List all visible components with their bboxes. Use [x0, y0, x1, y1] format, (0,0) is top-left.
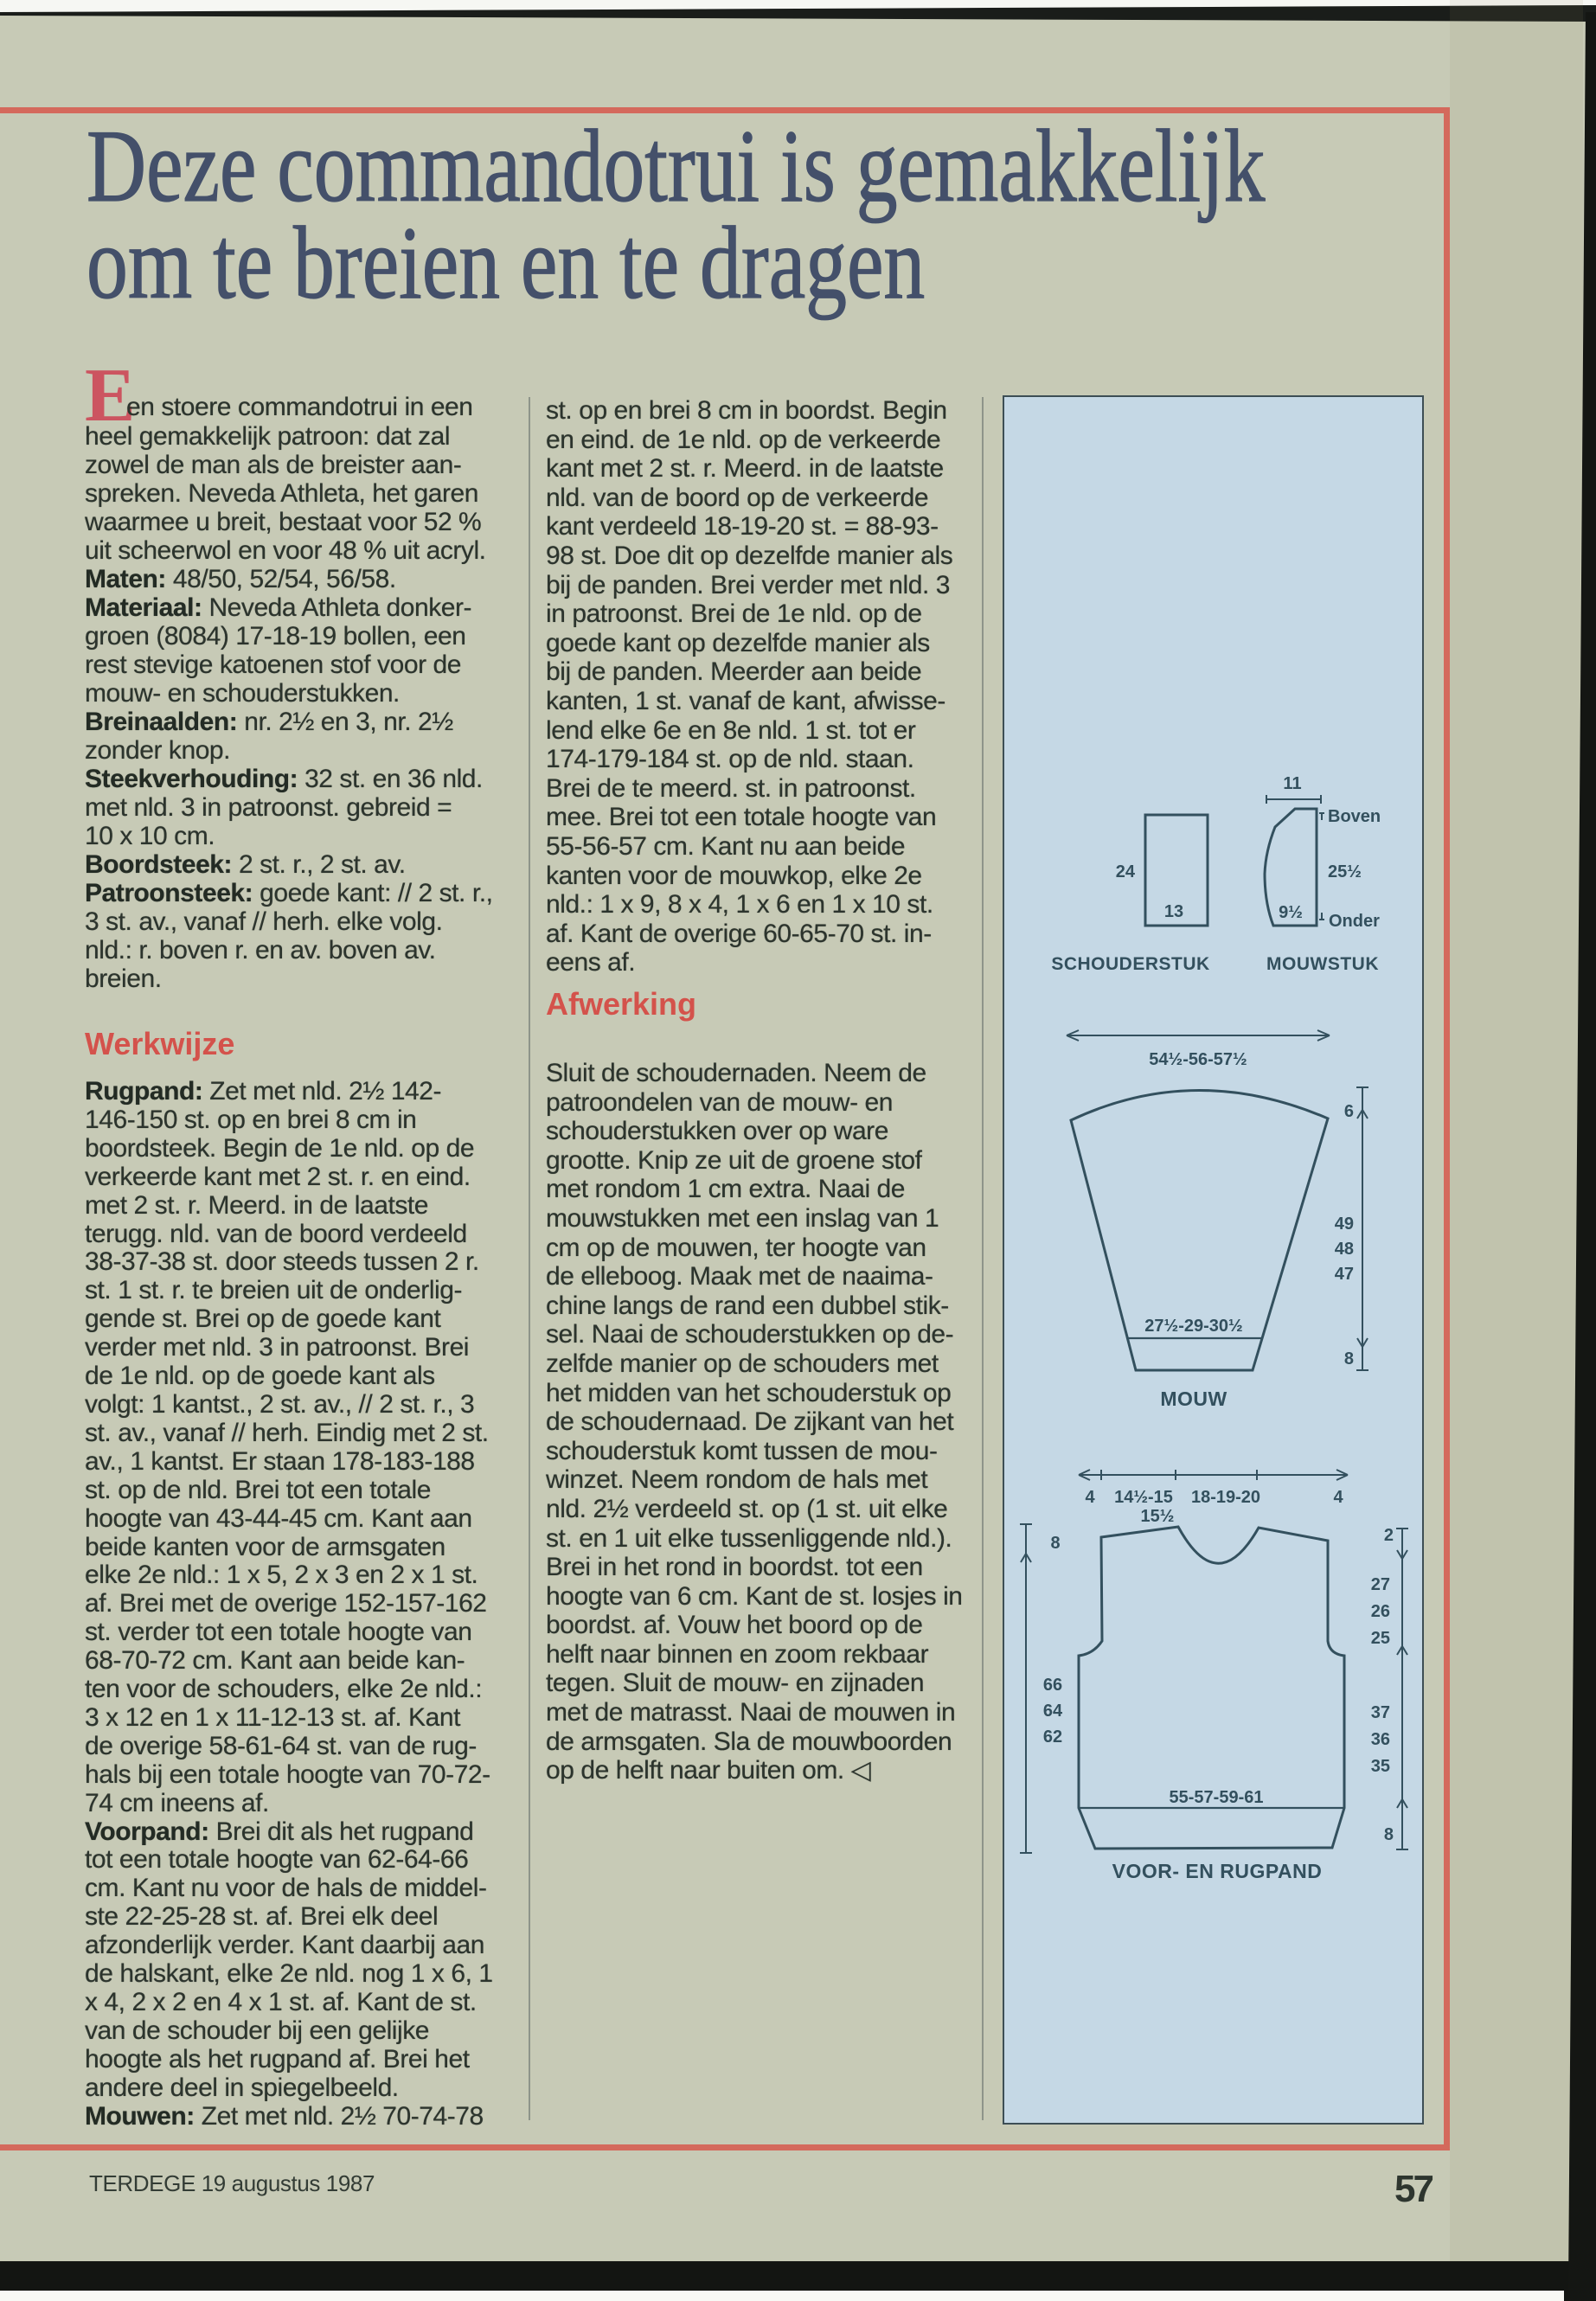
svg-text:48: 48 [1335, 1240, 1354, 1259]
svg-text:6: 6 [1344, 1102, 1354, 1121]
svg-text:54½-56-57½: 54½-56-57½ [1149, 1050, 1247, 1069]
svg-text:8: 8 [1050, 1534, 1060, 1553]
svg-text:24: 24 [1116, 862, 1136, 881]
svg-text:8: 8 [1344, 1349, 1354, 1368]
svg-text:25: 25 [1371, 1629, 1390, 1648]
svg-text:66: 66 [1043, 1676, 1062, 1695]
svg-text:15½: 15½ [1141, 1507, 1175, 1526]
svg-text:27: 27 [1371, 1575, 1390, 1594]
svg-text:49: 49 [1335, 1215, 1354, 1234]
svg-text:4: 4 [1333, 1488, 1343, 1507]
svg-text:47: 47 [1335, 1265, 1354, 1284]
svg-text:Onder: Onder [1329, 912, 1380, 931]
svg-text:11: 11 [1283, 774, 1301, 793]
svg-text:MOUW: MOUW [1160, 1388, 1227, 1410]
svg-text:13: 13 [1164, 902, 1183, 921]
svg-text:64: 64 [1043, 1702, 1063, 1721]
svg-text:55-57-59-61: 55-57-59-61 [1170, 1788, 1264, 1807]
svg-text:4: 4 [1085, 1488, 1095, 1507]
svg-text:MOUWSTUK: MOUWSTUK [1266, 954, 1379, 974]
svg-text:18-19-20: 18-19-20 [1191, 1488, 1260, 1507]
svg-text:14½-15: 14½-15 [1114, 1488, 1173, 1507]
svg-text:62: 62 [1043, 1727, 1062, 1747]
svg-text:2: 2 [1384, 1526, 1394, 1545]
svg-text:VOOR- EN RUGPAND: VOOR- EN RUGPAND [1112, 1860, 1323, 1882]
svg-text:26: 26 [1371, 1602, 1390, 1621]
svg-text:37: 37 [1371, 1703, 1390, 1722]
svg-text:36: 36 [1371, 1730, 1390, 1749]
svg-text:Boven: Boven [1328, 807, 1381, 826]
svg-text:35: 35 [1371, 1757, 1390, 1776]
svg-text:8: 8 [1384, 1825, 1394, 1844]
svg-text:25½: 25½ [1328, 862, 1362, 881]
svg-text:SCHOUDERSTUK: SCHOUDERSTUK [1051, 954, 1209, 974]
svg-text:9½: 9½ [1279, 903, 1303, 922]
svg-text:27½-29-30½: 27½-29-30½ [1144, 1317, 1242, 1336]
